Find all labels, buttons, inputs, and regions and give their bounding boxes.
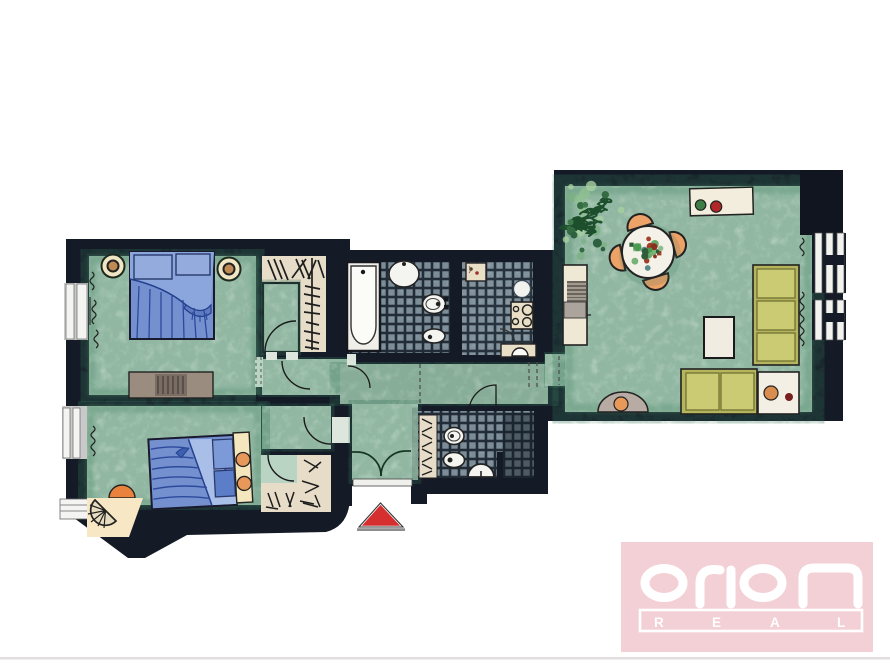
svg-text:R: R bbox=[654, 615, 664, 630]
svg-text:E: E bbox=[712, 615, 721, 630]
svg-text:L: L bbox=[837, 615, 845, 630]
svg-text:A: A bbox=[770, 615, 780, 630]
